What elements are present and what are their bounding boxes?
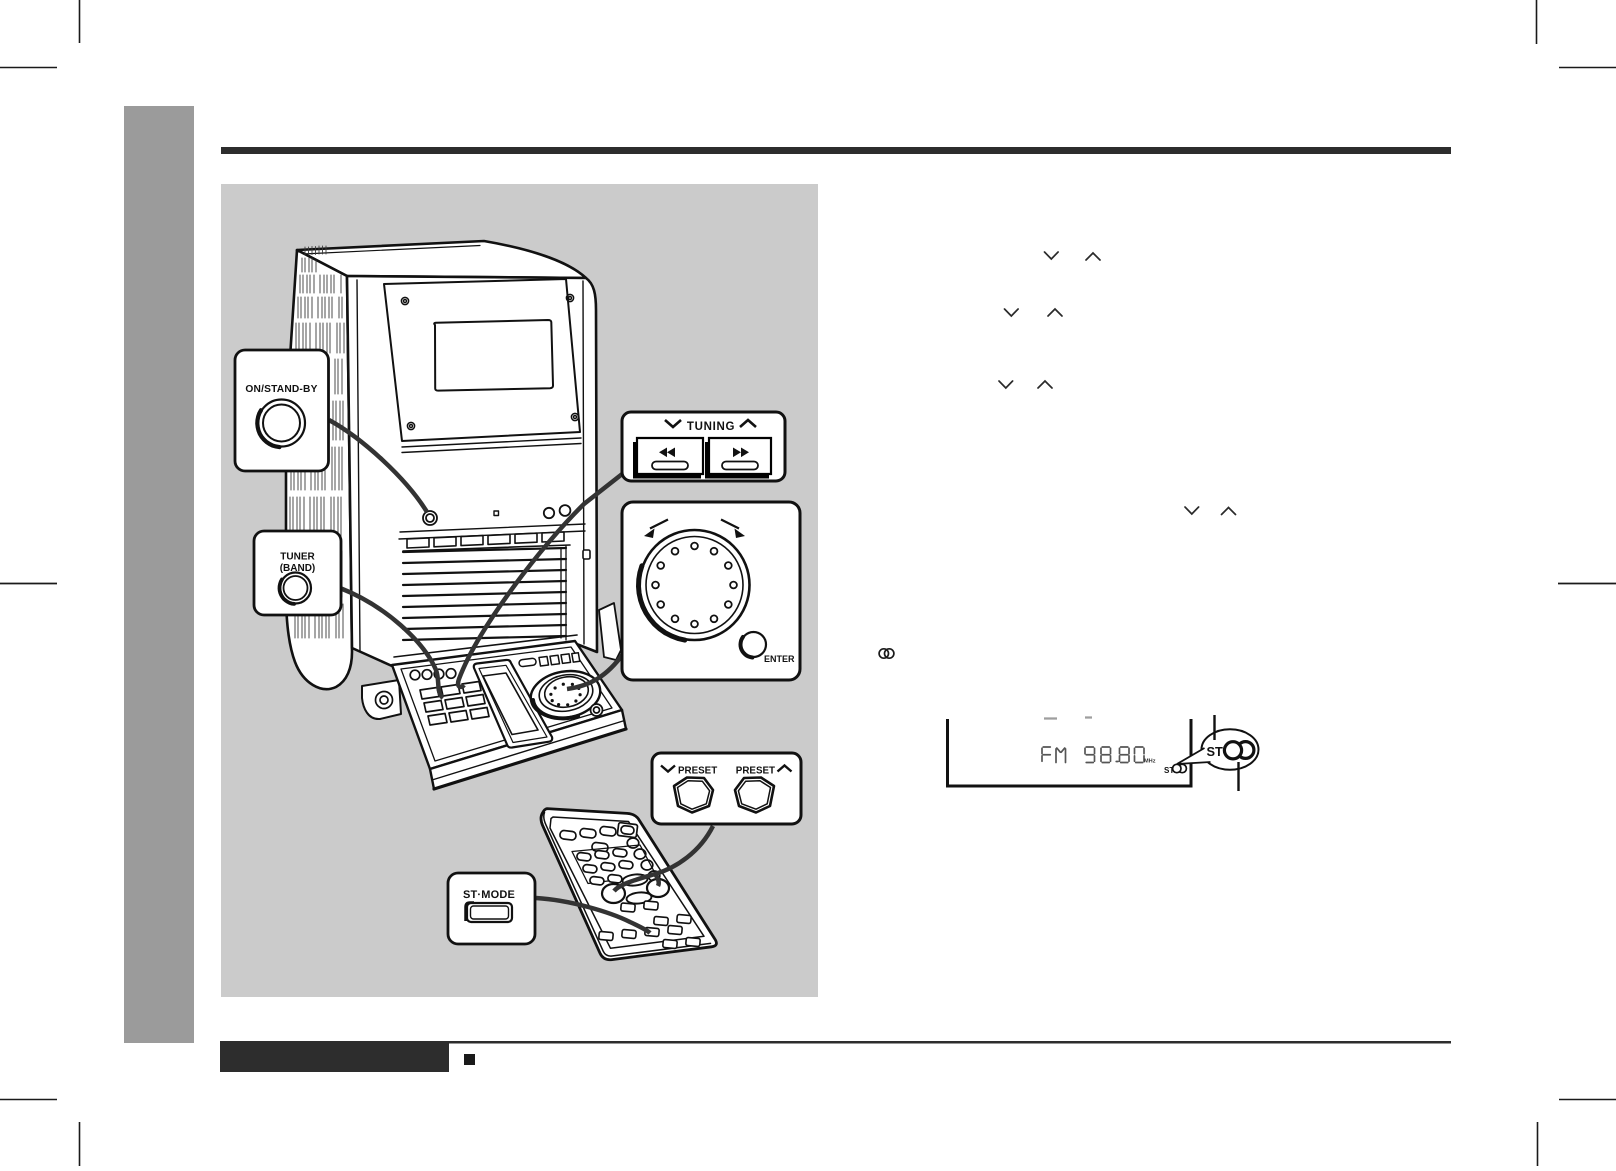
svg-text:ST: ST: [1207, 744, 1224, 759]
svg-text:MHz: MHz: [1144, 759, 1156, 765]
svg-text:PRESET: PRESET: [736, 766, 775, 777]
svg-text:TUNER: TUNER: [280, 552, 315, 563]
svg-text:ST·MODE: ST·MODE: [463, 889, 515, 901]
svg-text:ENTER: ENTER: [764, 654, 795, 664]
svg-text:TUNING: TUNING: [687, 421, 735, 433]
svg-text:ON/STAND-BY: ON/STAND-BY: [245, 384, 317, 395]
svg-text:PRESET: PRESET: [678, 766, 717, 777]
